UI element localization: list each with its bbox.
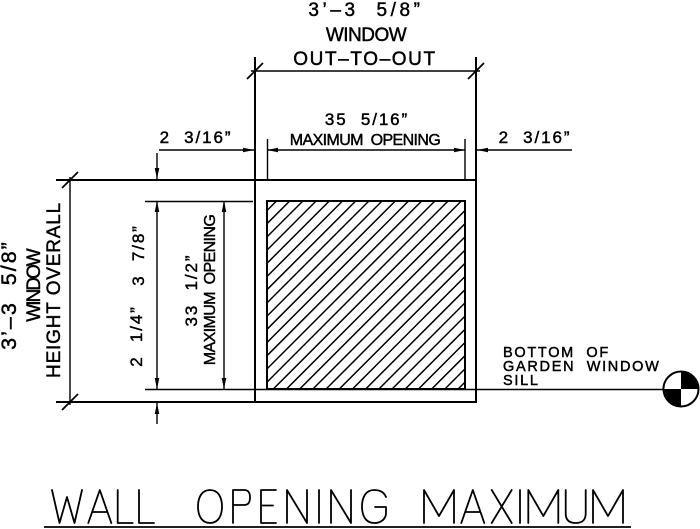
svg-text:2 3/16”: 2 3/16”: [499, 128, 572, 147]
svg-text:35 5/16”: 35 5/16”: [325, 110, 409, 129]
svg-text:33 1/2”: 33 1/2”: [182, 254, 201, 327]
svg-text:HEIGHT OVERALL: HEIGHT OVERALL: [44, 202, 65, 378]
svg-text:WINDOW: WINDOW: [326, 25, 407, 46]
svg-text:3 7/8”: 3 7/8”: [129, 224, 148, 286]
svg-text:3’–3 5/8”: 3’–3 5/8”: [308, 0, 423, 21]
svg-text:SILL: SILL: [503, 373, 540, 389]
svg-text:3’–3 5/8”: 3’–3 5/8”: [0, 240, 21, 350]
svg-text:OUT–TO–OUT: OUT–TO–OUT: [293, 49, 436, 70]
svg-text:2 1/4”: 2 1/4”: [127, 305, 146, 367]
svg-text:WINDOW: WINDOW: [24, 248, 45, 321]
svg-text:MAXIMUM OPENING: MAXIMUM OPENING: [202, 215, 219, 366]
svg-text:2 3/16”: 2 3/16”: [160, 128, 233, 147]
svg-text:MAXIMUM OPENING: MAXIMUM OPENING: [290, 132, 441, 149]
